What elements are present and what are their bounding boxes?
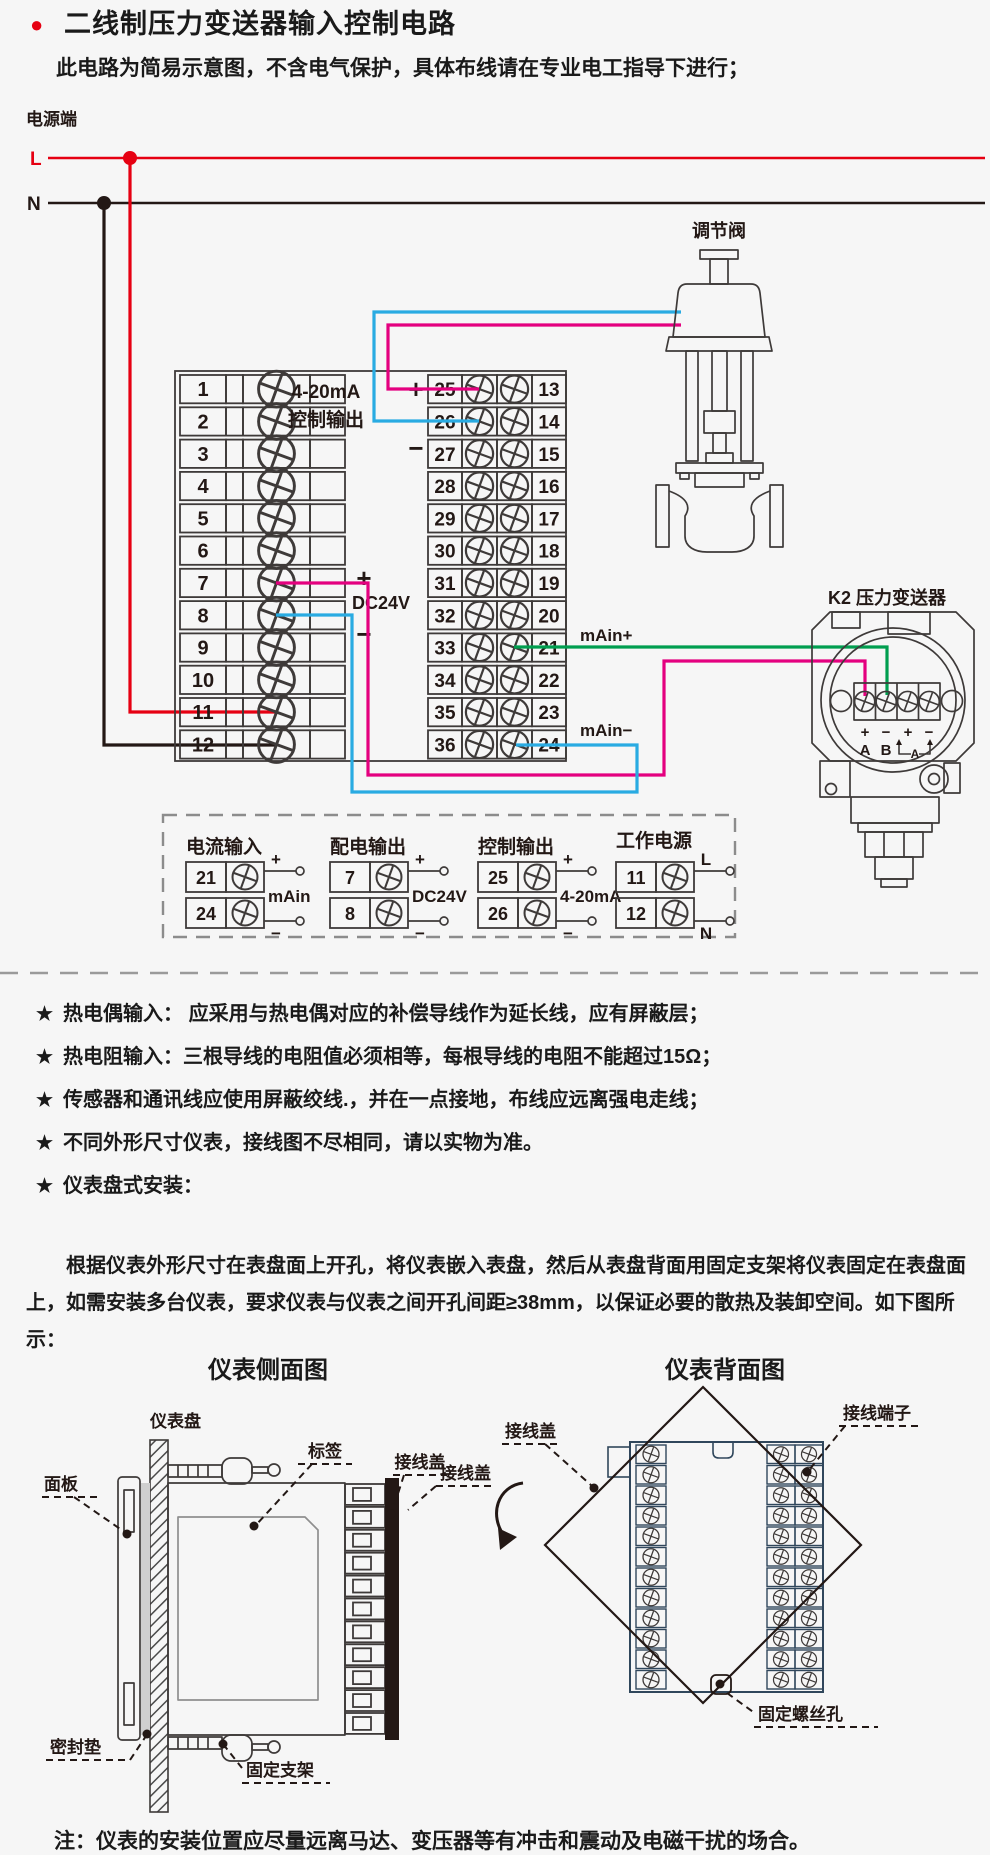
dc24v-label: DC24V (352, 593, 410, 613)
legend-group-supply-output: 配电输出 7 + 8 − DC24V (330, 835, 467, 943)
screw-icon (498, 696, 531, 729)
terminal-number: 9 (197, 638, 208, 660)
page-subtitle: 此电路为简易示意图，不含电气保护，具体布线请在专业电工指导下进行； (56, 52, 749, 82)
pressure-transmitter (812, 612, 974, 887)
manual-page: ● 二线制压力变送器输入控制电路 此电路为简易示意图，不含电气保护，具体布线请在… (0, 0, 990, 1855)
legend-terminal-no: 12 (626, 904, 646, 924)
terminal-number: 35 (434, 703, 456, 724)
legend-group-current-input: 电流输入 21 + 24 − mAin (186, 835, 311, 943)
screw-icon (800, 1609, 818, 1627)
terminal-number: 13 (538, 380, 559, 401)
back-view-figure: 接线盖 接线盖 接线端子 固定螺丝孔 (408, 1387, 922, 1727)
legend-sign: − (271, 924, 281, 943)
valve-wire-plus (388, 325, 681, 389)
note-item: ★热电偶输入： 应采用与热电偶对应的补偿导线作为延长线，应有屏蔽层； (36, 1004, 976, 1025)
note-text: 热电阻输入：三根导线的电阻值必须相等，每根导线的电阻不能超过15Ω； (63, 1047, 721, 1068)
screw-icon (641, 1547, 660, 1566)
power-label: 电源端 (26, 109, 77, 129)
gasket-label: 密封垫 (50, 1737, 101, 1757)
screw-icon (463, 599, 496, 632)
terminal-number: 25 (434, 380, 456, 401)
terminal-number: 10 (192, 670, 214, 692)
screw-icon (498, 599, 531, 632)
legend-sign: + (415, 850, 425, 869)
front-panel-label: 面板 (44, 1474, 79, 1494)
screw-icon (772, 1466, 790, 1484)
screw-icon (641, 1609, 660, 1628)
valve-label: 调节阀 (692, 220, 746, 241)
legend-terminal-no: 7 (345, 868, 355, 888)
legend-sign: − (563, 924, 573, 943)
side-view-figure: 仪表盘 面板 (42, 1411, 447, 1812)
note-item: ★仪表盘式安装： (36, 1176, 976, 1197)
note-item: ★不同外形尺寸仪表，接线图不尽相同，请以实物为准。 (36, 1133, 976, 1154)
terminal-lug-label: 接线端子 (843, 1403, 911, 1423)
rotate-arrowhead (498, 1528, 517, 1550)
screw-icon (800, 1548, 818, 1566)
legend-terminal-no: 25 (488, 868, 508, 888)
note-text: 传感器和通讯线应使用屏蔽绞线.，并在一点接地，布线应远离强电走线； (63, 1090, 709, 1111)
star-icon: ★ (36, 1004, 53, 1025)
terminal-number: 4 (197, 476, 209, 498)
back-cover-label-2: 接线盖 (440, 1463, 491, 1483)
output-label-line2: 控制输出 (288, 408, 364, 431)
legend-title: 配电输出 (330, 835, 406, 858)
terminal-number: 3 (197, 444, 208, 466)
screw-icon (498, 567, 531, 600)
screw-icon (463, 696, 496, 729)
screw-icon (498, 405, 531, 438)
right-terminal-strip: 2513261427152816291730183119322033213422… (428, 373, 566, 761)
install-paragraph: 根据仪表外形尺寸在表盘面上开孔，将仪表嵌入表盘，然后从表盘背面用固定支架将仪表固… (26, 1248, 974, 1359)
rear-connector-column (345, 1484, 385, 1734)
screw-icon (800, 1671, 818, 1689)
screw-icon (772, 1445, 790, 1463)
legend-title: 工作电源 (616, 829, 692, 852)
control-valve (656, 250, 783, 552)
back-cover-label-1: 接线盖 (505, 1421, 556, 1441)
terminal-number: 29 (434, 509, 455, 530)
legend-sign: + (271, 850, 281, 869)
terminal-number: 15 (538, 445, 560, 466)
legend-sign: N (700, 924, 712, 943)
star-icon: ★ (36, 1047, 53, 1068)
screw-icon (463, 470, 496, 503)
screw-icon (641, 1465, 660, 1484)
terminal-number: 27 (434, 445, 455, 466)
screw-icon (463, 502, 496, 535)
screw-icon (463, 534, 496, 567)
neutral-label: N (27, 194, 41, 215)
screw-icon (498, 664, 531, 697)
tx-pin-minus2: − (925, 724, 934, 741)
legend-terminal-no: 11 (626, 868, 645, 888)
legend-signal-label: 4-20mA (560, 887, 621, 906)
main-minus-label: mAin− (580, 721, 633, 740)
screw-icon (463, 631, 496, 664)
terminal-number: 36 (434, 735, 455, 756)
screw-icon (772, 1589, 790, 1607)
screw-icon (800, 1486, 818, 1504)
tag-label: 标签 (308, 1441, 343, 1461)
terminal-number: 1 (197, 379, 208, 401)
wiring-diagram: 电源端 L N 123456789101112 2513261427152816… (0, 95, 990, 977)
tx-screw-icon (896, 689, 920, 713)
screw-icon (463, 437, 496, 470)
gasket-strip (141, 1483, 150, 1735)
output-minus: − (408, 433, 423, 463)
screw-icon (463, 567, 496, 600)
terminal-number: 26 (434, 412, 455, 433)
screw-icon (772, 1486, 790, 1504)
screw-icon (498, 502, 531, 535)
terminal-number: 16 (538, 477, 559, 498)
note-list: ★热电偶输入： 应采用与热电偶对应的补偿导线作为延长线，应有屏蔽层； ★热电阻输… (36, 1004, 976, 1219)
back-right-screw-block (767, 1445, 823, 1689)
screw-icon (641, 1588, 660, 1607)
star-icon: ★ (36, 1176, 53, 1197)
tx-screw-icon (917, 689, 941, 713)
tx-pin-plus2: + (904, 724, 913, 741)
legend-title: 控制输出 (478, 835, 554, 858)
screw-icon (772, 1527, 790, 1545)
terminal-number: 28 (434, 477, 455, 498)
live-label: L (30, 149, 42, 170)
legend-group-control-output: 控制输出 25 + 26 − 4-20mA (478, 835, 621, 943)
screw-icon (498, 437, 531, 470)
legend-terminal-no: 8 (345, 904, 355, 924)
legend-sign: − (415, 924, 425, 943)
legend-terminal-no: 24 (196, 904, 216, 924)
terminal-number: 5 (197, 508, 208, 530)
terminal-number: 12 (192, 734, 214, 756)
note-text: 热电偶输入： 应采用与热电偶对应的补偿导线作为延长线，应有屏蔽层； (63, 1004, 709, 1025)
page-title: 二线制压力变送器输入控制电路 (64, 2, 456, 41)
terminal-number: 21 (538, 639, 560, 660)
screw-icon (641, 1527, 660, 1546)
terminal-number: 31 (434, 574, 456, 595)
legend-group-working-power: 工作电源 11 L 12 N (616, 829, 734, 943)
terminal-number: 34 (434, 671, 456, 692)
screw-icon (772, 1671, 790, 1689)
screw-icon (800, 1650, 818, 1668)
terminal-number: 33 (434, 639, 455, 660)
star-icon: ★ (36, 1090, 53, 1111)
legend-terminal-no: 26 (488, 904, 508, 924)
note-item: ★传感器和通讯线应使用屏蔽绞线.，并在一点接地，布线应远离强电走线； (36, 1090, 976, 1111)
terminal-number: 11 (192, 702, 213, 724)
screw-icon (772, 1650, 790, 1668)
legend-terminal-no: 21 (196, 868, 216, 888)
screw-icon (498, 470, 531, 503)
output-label-line1: 4-20mA (292, 382, 361, 403)
note-text: 仪表盘式安装： (63, 1176, 203, 1197)
legend-sign: L (701, 850, 711, 869)
terminal-number: 8 (197, 605, 208, 627)
cover-label: 接线盖 (395, 1452, 446, 1472)
screw-icon (641, 1445, 660, 1464)
terminal-number: 7 (197, 573, 208, 595)
screw-icon (800, 1630, 818, 1648)
back-left-screw-column (636, 1445, 666, 1690)
installation-figures: 仪表盘 面板 (0, 1380, 990, 1825)
valve-wire-minus (374, 312, 681, 421)
legend-signal-label: DC24V (412, 887, 467, 906)
screw-icon (800, 1527, 818, 1545)
tx-meter-a: A (911, 747, 920, 761)
tx-pin-plus1: + (861, 724, 870, 741)
screw-icon (498, 534, 531, 567)
legend-signal-label: mAin (268, 887, 311, 906)
tx-pin-minus1: − (882, 724, 891, 741)
screw-icon (463, 664, 496, 697)
legend-sign: + (563, 850, 573, 869)
terminal-number: 6 (197, 541, 208, 563)
bottom-note: 注：仪表的安装位置应尽量远离马达、变压器等有冲击和震动及电磁干扰的场合。 (54, 1825, 810, 1855)
screw-icon (772, 1548, 790, 1566)
main-plus-label: mAin+ (580, 626, 633, 645)
terminal-number: 14 (538, 412, 560, 433)
legend-title: 电流输入 (186, 835, 262, 858)
terminal-number: 23 (538, 703, 559, 724)
star-icon: ★ (36, 1133, 53, 1154)
terminal-number: 19 (538, 574, 559, 595)
screw-icon (641, 1670, 660, 1689)
screw-icon (498, 373, 531, 406)
panel-wall (150, 1440, 168, 1812)
terminal-number: 30 (434, 542, 455, 563)
screw-icon (772, 1568, 790, 1586)
screw-icon (641, 1568, 660, 1587)
transmitter-label: K2 压力变送器 (828, 587, 947, 608)
note-text: 不同外形尺寸仪表，接线图不尽相同，请以实物为准。 (63, 1133, 543, 1154)
terminal-number: 18 (538, 542, 559, 563)
rotate-arrow-icon (497, 1483, 523, 1537)
section-bullet-icon: ● (30, 12, 43, 38)
bracket-label: 固定支架 (246, 1760, 314, 1780)
tx-pin-a: A (860, 742, 871, 759)
screw-icon (641, 1506, 660, 1525)
screw-icon (463, 728, 496, 761)
screw-icon (800, 1568, 818, 1586)
terminal-number: 17 (538, 509, 559, 530)
terminal-number: 2 (197, 411, 208, 433)
screw-icon (641, 1486, 660, 1505)
terminal-number: 32 (434, 606, 455, 627)
screw-icon (800, 1445, 818, 1463)
tx-pin-b: B (881, 742, 892, 759)
note-item: ★热电阻输入：三根导线的电阻值必须相等，每根导线的电阻不能超过15Ω； (36, 1047, 976, 1068)
panel-board-label: 仪表盘 (149, 1411, 201, 1431)
screw-icon (800, 1507, 818, 1525)
terminal-number: 20 (538, 606, 559, 627)
screw-icon (772, 1507, 790, 1525)
screw-hole-label: 固定螺丝孔 (758, 1704, 843, 1724)
terminal-number: 22 (538, 671, 559, 692)
